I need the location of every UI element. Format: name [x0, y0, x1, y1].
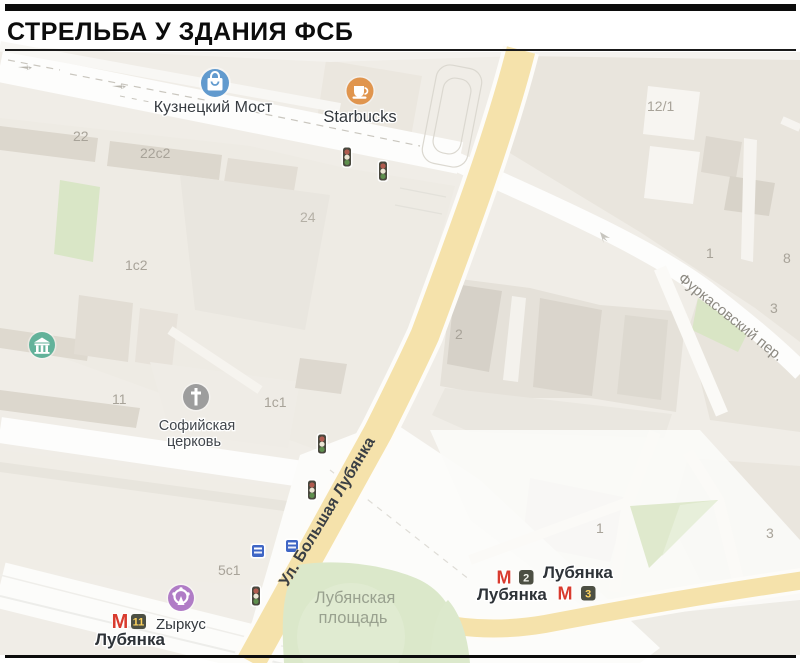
- svg-text:площадь: площадь: [319, 609, 388, 627]
- svg-text:Лубянка: Лубянка: [543, 563, 613, 582]
- svg-text:8: 8: [783, 250, 791, 266]
- svg-text:Кузнецкий Мост: Кузнецкий Мост: [154, 99, 273, 116]
- svg-text:Лубянка: Лубянка: [95, 630, 165, 649]
- svg-text:2: 2: [523, 572, 529, 584]
- svg-text:Starbucks: Starbucks: [323, 108, 396, 126]
- svg-text:М: М: [558, 584, 573, 604]
- svg-text:Лубянская: Лубянская: [315, 589, 396, 607]
- svg-text:3: 3: [770, 300, 778, 316]
- svg-text:церковь: церковь: [167, 434, 221, 450]
- svg-text:2: 2: [455, 326, 463, 342]
- svg-text:Софийская: Софийская: [159, 418, 236, 434]
- svg-text:5с1: 5с1: [218, 562, 241, 578]
- svg-text:11: 11: [112, 391, 127, 407]
- svg-text:22с2: 22с2: [140, 145, 171, 161]
- svg-text:12/1: 12/1: [647, 98, 674, 114]
- svg-text:Лубянка: Лубянка: [477, 585, 547, 604]
- svg-text:3: 3: [766, 525, 774, 541]
- svg-text:1: 1: [706, 245, 714, 261]
- svg-text:1с2: 1с2: [125, 257, 148, 273]
- svg-text:1с1: 1с1: [264, 394, 287, 410]
- svg-text:22: 22: [73, 128, 89, 144]
- svg-text:3: 3: [585, 588, 591, 600]
- svg-text:СТРЕЛЬБА У ЗДАНИЯ ФСБ: СТРЕЛЬБА У ЗДАНИЯ ФСБ: [7, 18, 353, 46]
- svg-text:1: 1: [596, 520, 604, 536]
- svg-text:11: 11: [133, 617, 145, 629]
- svg-text:24: 24: [300, 209, 316, 225]
